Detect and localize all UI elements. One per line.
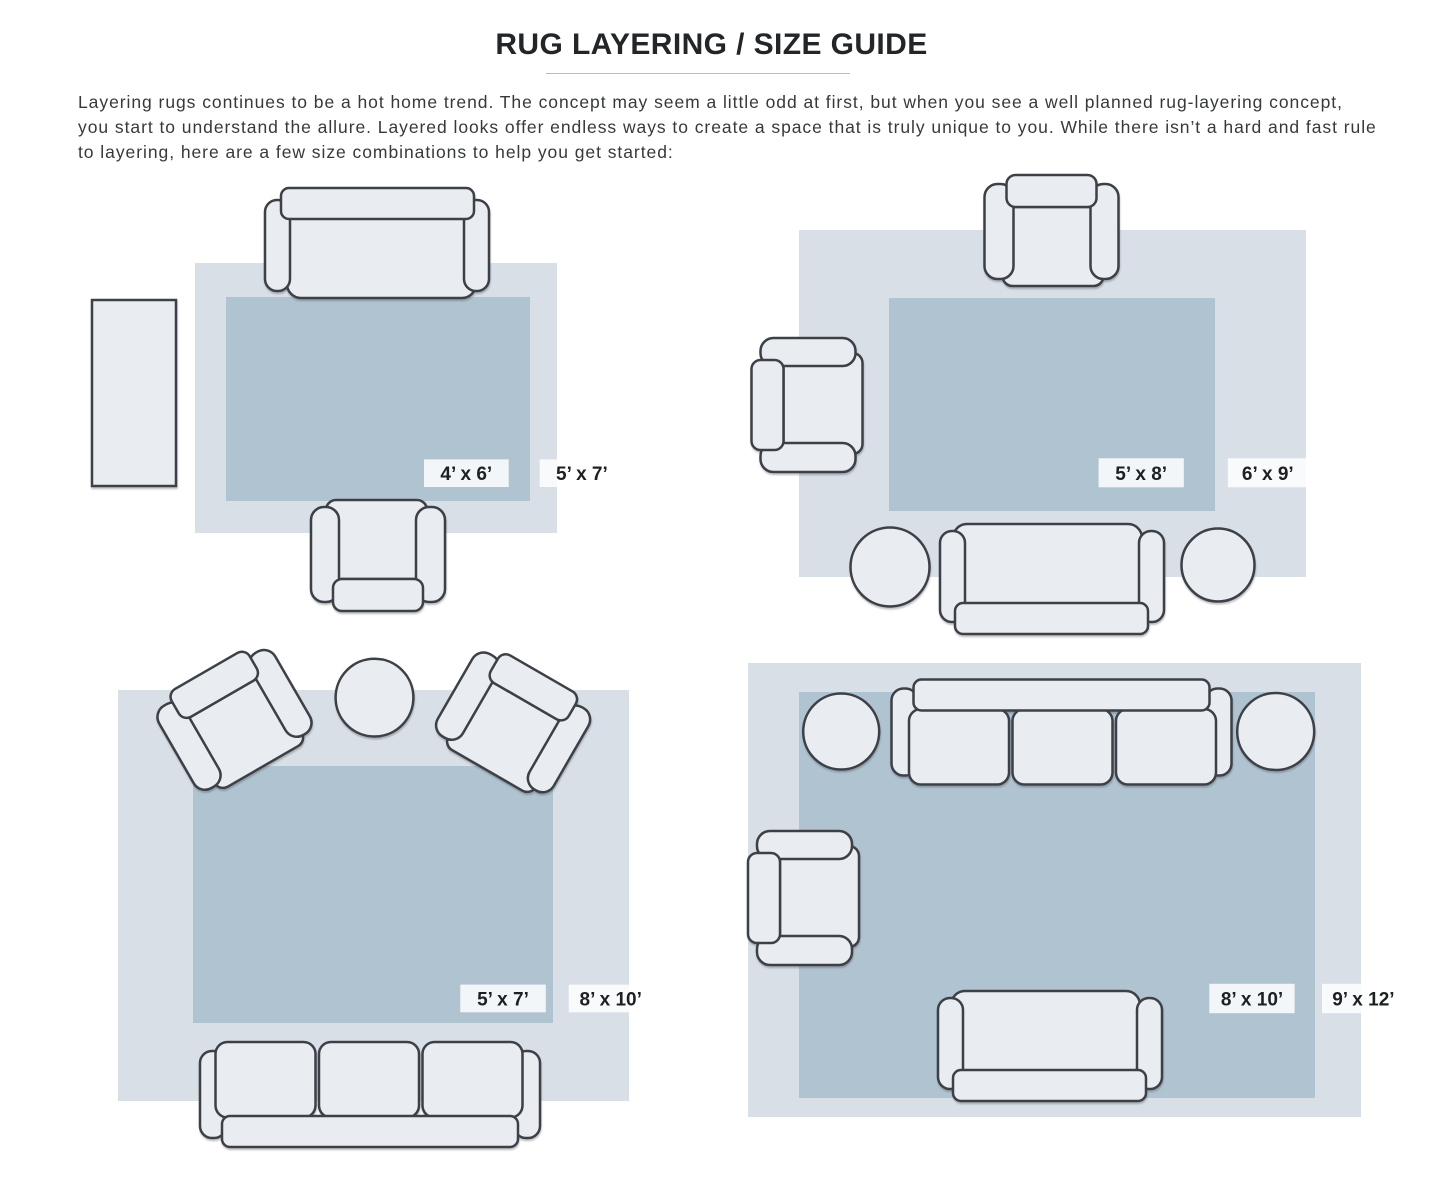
svg-text:5’ x 7’: 5’ x 7’ — [477, 990, 529, 1011]
svg-text:4’ x 6’: 4’ x 6’ — [440, 464, 492, 485]
svg-text:6’ x 9’: 6’ x 9’ — [1242, 464, 1294, 485]
svg-text:8’ x 10’: 8’ x 10’ — [1221, 990, 1283, 1011]
svg-text:9’ x 12’: 9’ x 12’ — [1332, 990, 1394, 1011]
svg-text:5’ x 7’: 5’ x 7’ — [556, 464, 608, 485]
svg-text:8’ x 10’: 8’ x 10’ — [580, 990, 642, 1011]
svg-text:5’ x 8’: 5’ x 8’ — [1115, 464, 1167, 485]
